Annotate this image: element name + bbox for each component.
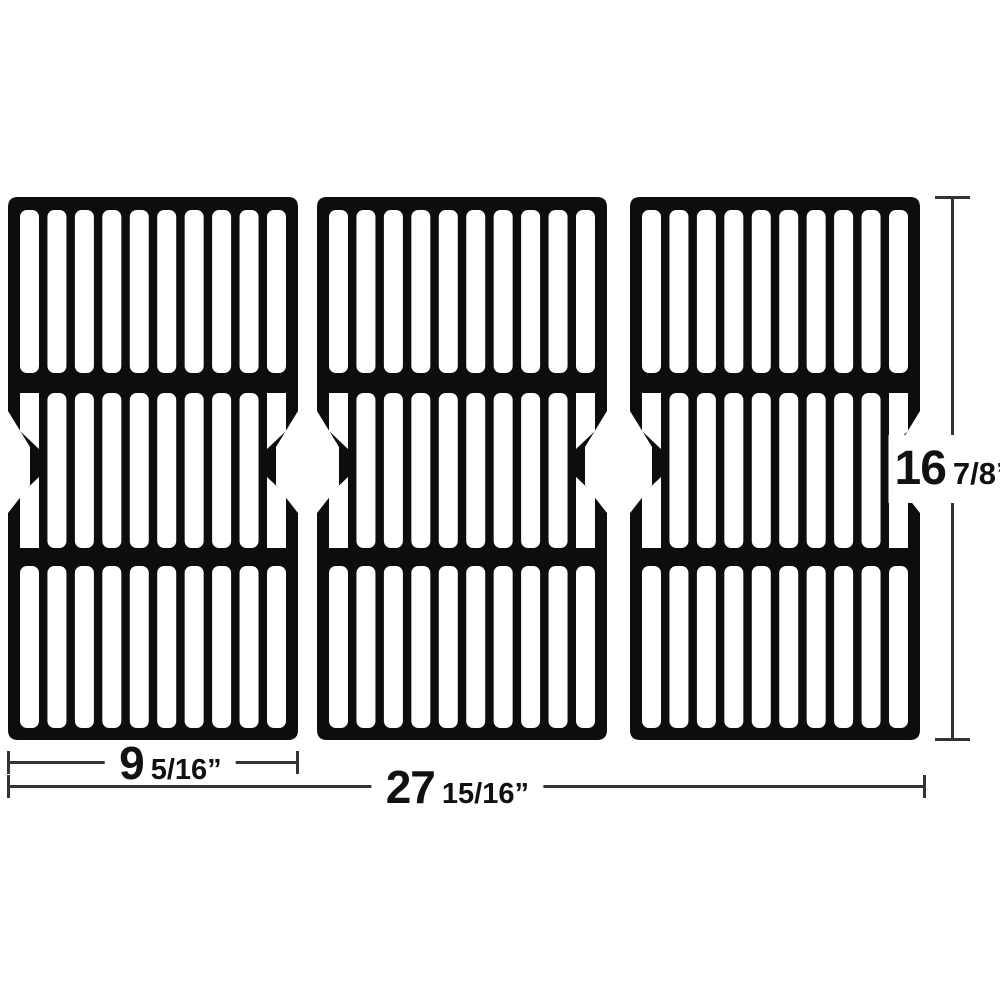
grate-panel-3 — [630, 197, 920, 740]
grill-grate-dimension-diagram: 9 5/16” 27 15/16” 16 7/8” — [0, 0, 1000, 1000]
height-fraction: 7/8” — [953, 458, 1000, 489]
panel-width-whole: 9 — [119, 740, 144, 786]
height-dimension: 16 7/8” — [951, 197, 954, 740]
grate-panel-1 — [8, 197, 298, 740]
dimension-tick — [923, 775, 926, 798]
total-width-label: 27 15/16” — [372, 764, 543, 810]
total-width-fraction: 15/16” — [442, 780, 529, 809]
total-width-whole: 27 — [386, 764, 435, 810]
grate-panel-2 — [317, 197, 607, 740]
dimension-tick — [935, 738, 970, 741]
height-label: 16 7/8” — [889, 435, 1000, 503]
panel-width-fraction: 5/16” — [151, 756, 222, 785]
dimension-tick — [7, 751, 10, 774]
height-whole: 16 — [895, 445, 946, 493]
dimension-tick — [935, 196, 970, 199]
dimension-tick — [7, 775, 10, 798]
dimension-tick — [296, 751, 299, 774]
panel-width-label: 9 5/16” — [105, 740, 236, 786]
